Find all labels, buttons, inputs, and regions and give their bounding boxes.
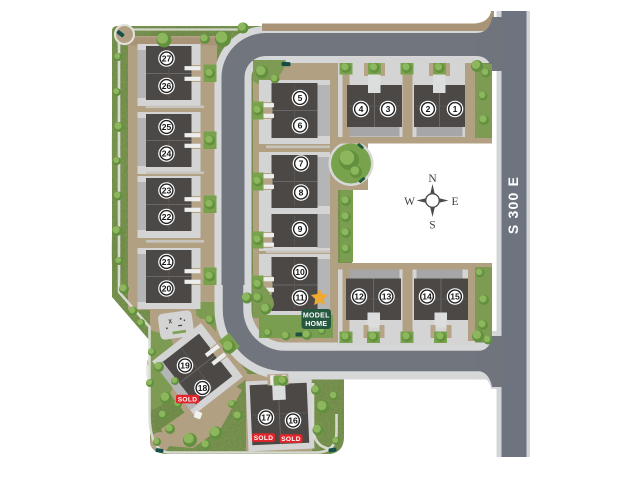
svg-text:4: 4 xyxy=(359,104,364,114)
svg-text:12: 12 xyxy=(354,292,364,302)
svg-text:23: 23 xyxy=(162,186,172,196)
svg-text:SOLD: SOLD xyxy=(281,436,301,443)
svg-text:3: 3 xyxy=(386,104,391,114)
svg-text:6: 6 xyxy=(298,121,303,131)
svg-text:20: 20 xyxy=(162,284,172,294)
svg-text:E: E xyxy=(451,196,458,208)
svg-text:7: 7 xyxy=(299,159,304,169)
svg-text:11: 11 xyxy=(295,293,304,303)
svg-text:9: 9 xyxy=(298,224,303,234)
svg-text:14: 14 xyxy=(422,292,432,302)
svg-text:SOLD: SOLD xyxy=(178,396,198,403)
svg-text:S: S xyxy=(429,220,435,232)
svg-text:W: W xyxy=(404,196,415,208)
svg-text:HOME: HOME xyxy=(305,321,327,328)
svg-text:17: 17 xyxy=(261,413,271,423)
svg-text:10: 10 xyxy=(295,267,305,277)
svg-text:5: 5 xyxy=(298,93,303,103)
svg-text:S 300 E: S 300 E xyxy=(505,176,521,234)
svg-text:19: 19 xyxy=(180,361,190,371)
svg-text:N: N xyxy=(428,173,437,185)
svg-text:MODEL: MODEL xyxy=(303,312,330,319)
svg-text:24: 24 xyxy=(162,149,172,159)
svg-text:13: 13 xyxy=(382,292,392,302)
svg-text:27: 27 xyxy=(162,54,172,64)
svg-text:22: 22 xyxy=(162,212,172,222)
svg-text:16: 16 xyxy=(288,416,298,426)
svg-text:SOLD: SOLD xyxy=(254,435,274,442)
svg-text:18: 18 xyxy=(198,383,208,393)
svg-text:8: 8 xyxy=(299,188,304,198)
svg-text:21: 21 xyxy=(162,257,172,267)
svg-text:25: 25 xyxy=(162,122,172,132)
svg-text:1: 1 xyxy=(453,104,458,114)
svg-text:2: 2 xyxy=(426,104,431,114)
svg-text:26: 26 xyxy=(162,81,172,91)
svg-text:15: 15 xyxy=(450,292,460,302)
